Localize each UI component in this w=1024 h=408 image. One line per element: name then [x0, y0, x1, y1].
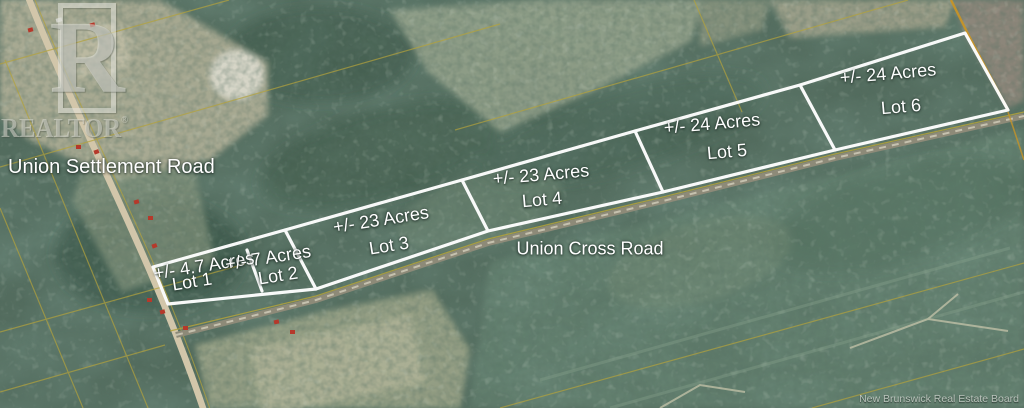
- lot5-name-label: Lot 5: [706, 140, 748, 164]
- union-cross-road-label: Union Cross Road: [516, 239, 663, 260]
- attribution-text: New Brunswick Real Estate Board: [859, 393, 1019, 405]
- union-settlement-road-label: Union Settlement Road: [8, 156, 215, 179]
- satellite-imagery: [0, 0, 1024, 408]
- lot6-name-label: Lot 6: [880, 95, 922, 119]
- aerial-lot-map: R REALTOR® Union Settlement Road Union C…: [0, 0, 1024, 408]
- lot4-name-label: Lot 4: [521, 188, 563, 212]
